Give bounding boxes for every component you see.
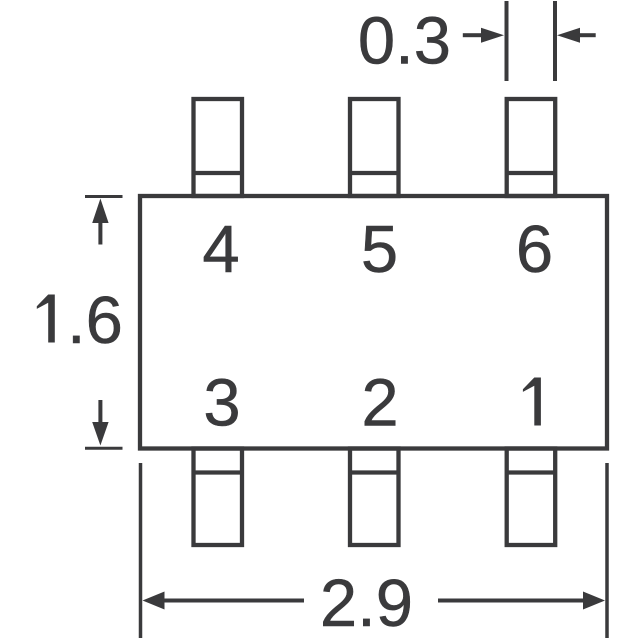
svg-text:.6: .6 bbox=[67, 283, 123, 358]
svg-text:3: 3 bbox=[203, 366, 240, 441]
svg-text:2: 2 bbox=[361, 366, 398, 441]
svg-text:2.9: 2.9 bbox=[320, 566, 413, 640]
svg-text:5: 5 bbox=[361, 212, 398, 287]
svg-text:6: 6 bbox=[516, 212, 553, 287]
svg-text:0.3: 0.3 bbox=[358, 4, 451, 79]
svg-text:4: 4 bbox=[202, 212, 239, 287]
